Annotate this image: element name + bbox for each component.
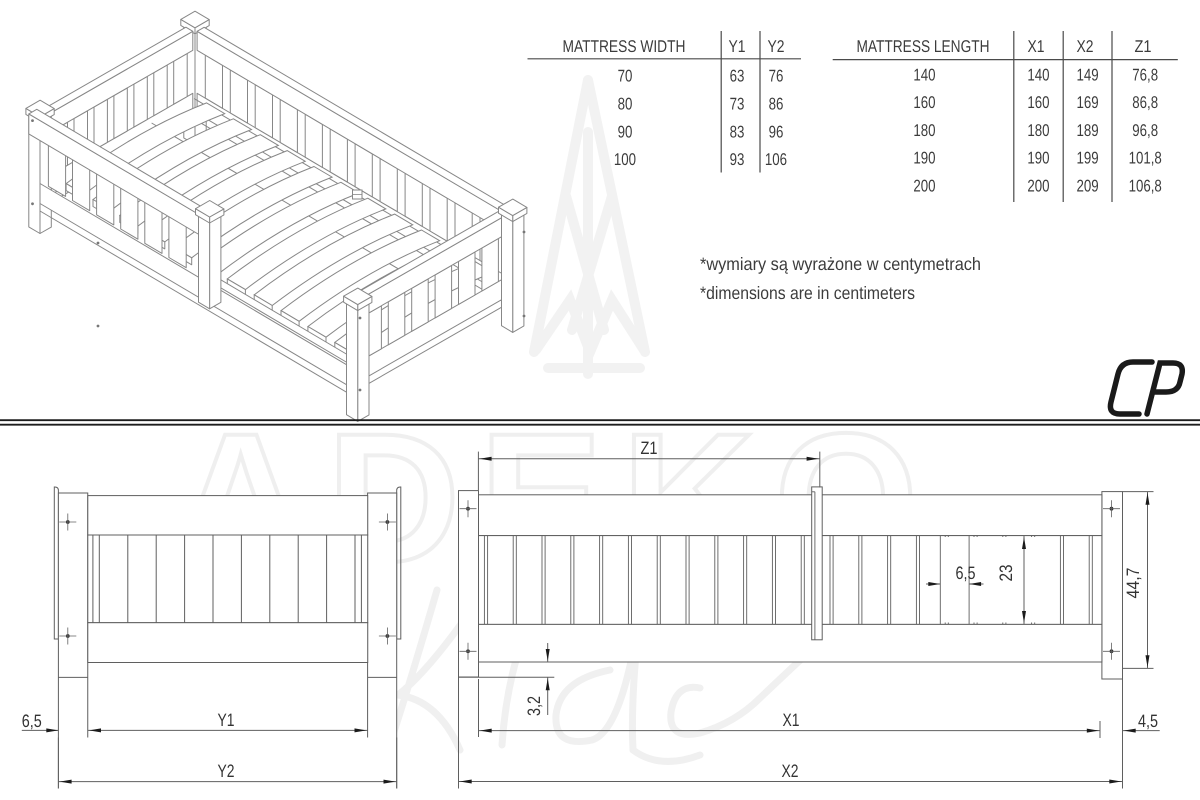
- svg-text:23: 23: [996, 565, 1016, 582]
- svg-text:180: 180: [913, 121, 935, 140]
- svg-text:70: 70: [618, 67, 633, 86]
- svg-text:Y1: Y1: [218, 710, 235, 730]
- svg-text:63: 63: [730, 67, 745, 86]
- svg-text:X2: X2: [782, 761, 799, 781]
- svg-text:106: 106: [765, 150, 787, 169]
- svg-text:*dimensions are in centimeters: *dimensions are in centimeters: [700, 283, 915, 303]
- svg-text:X1: X1: [1028, 37, 1045, 56]
- svg-text:4,5: 4,5: [1138, 711, 1158, 731]
- svg-text:200: 200: [913, 176, 935, 195]
- svg-text:140: 140: [1027, 66, 1049, 85]
- svg-text:Z1: Z1: [1135, 37, 1152, 56]
- svg-text:Y2: Y2: [768, 37, 785, 56]
- svg-text:80: 80: [618, 94, 633, 113]
- svg-text:190: 190: [913, 149, 935, 168]
- svg-text:3,2: 3,2: [524, 696, 544, 716]
- svg-text:100: 100: [614, 150, 636, 169]
- svg-text:Y1: Y1: [729, 37, 746, 56]
- svg-text:199: 199: [1077, 149, 1099, 168]
- svg-text:MATTRESS WIDTH: MATTRESS WIDTH: [563, 37, 686, 56]
- svg-text:X2: X2: [1077, 37, 1094, 56]
- svg-text:X1: X1: [783, 710, 800, 730]
- svg-text:160: 160: [1027, 93, 1049, 112]
- svg-text:200: 200: [1027, 176, 1049, 195]
- svg-text:76: 76: [769, 67, 784, 86]
- svg-text:6,5: 6,5: [22, 711, 42, 731]
- svg-text:Z1: Z1: [641, 438, 658, 458]
- svg-text:209: 209: [1077, 176, 1099, 195]
- svg-text:93: 93: [730, 150, 745, 169]
- svg-text:6,5: 6,5: [956, 563, 976, 583]
- svg-text:101,8: 101,8: [1129, 149, 1162, 168]
- svg-text:140: 140: [913, 66, 935, 85]
- svg-text:83: 83: [730, 122, 745, 141]
- svg-text:44,7: 44,7: [1123, 568, 1143, 599]
- svg-text:190: 190: [1027, 149, 1049, 168]
- svg-text:180: 180: [1027, 121, 1049, 140]
- svg-text:86,8: 86,8: [1132, 93, 1158, 112]
- svg-text:76,8: 76,8: [1132, 66, 1158, 85]
- svg-text:MATTRESS LENGTH: MATTRESS LENGTH: [857, 37, 990, 56]
- svg-text:160: 160: [913, 93, 935, 112]
- svg-text:96,8: 96,8: [1132, 121, 1158, 140]
- svg-text:169: 169: [1077, 93, 1099, 112]
- svg-text:90: 90: [618, 122, 633, 141]
- svg-text:73: 73: [730, 94, 745, 113]
- svg-text:149: 149: [1077, 66, 1099, 85]
- svg-text:Y2: Y2: [218, 761, 235, 781]
- svg-text:86: 86: [769, 94, 784, 113]
- svg-text:189: 189: [1077, 121, 1099, 140]
- svg-text:*wymiary są wyrażone w centyme: *wymiary są wyrażone w centymetrach: [700, 254, 981, 274]
- svg-text:96: 96: [769, 122, 784, 141]
- svg-text:106,8: 106,8: [1129, 176, 1162, 195]
